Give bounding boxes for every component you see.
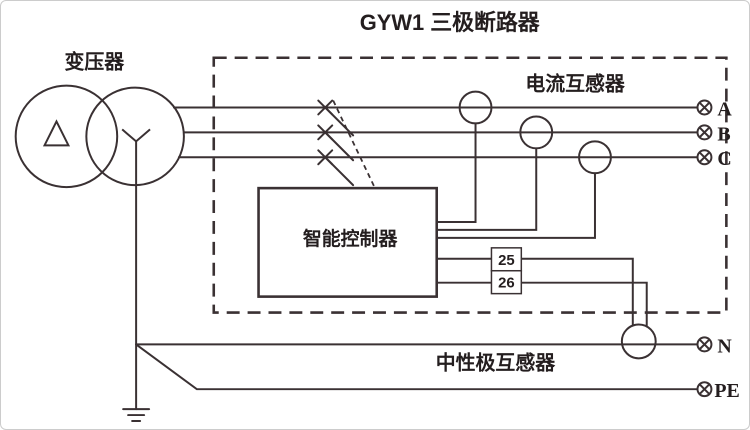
ct-b-tap-wire — [437, 148, 537, 230]
neutral-ct-icon — [622, 324, 656, 358]
terminal-26-number: 26 — [498, 275, 515, 292]
delta-icon — [45, 121, 69, 145]
ct-a-tap-wire — [437, 123, 476, 222]
trip-linkage-line — [333, 101, 374, 187]
terminal-a-label: A — [717, 98, 732, 120]
terminal-25-tag: 25 — [491, 248, 521, 271]
breaker-pole-contacts — [318, 101, 374, 187]
terminal-b-icon — [697, 125, 711, 139]
current-transformer-label: 电流互感器 — [525, 72, 626, 96]
ct-c-tap-wire — [437, 173, 595, 238]
schematic-page: 25 26 GYW1 三极断路器 变压器 电流互感器 智能控制器 中性极互感器 … — [0, 0, 750, 430]
terminal-n-label: N — [717, 335, 732, 357]
terminal-25-wire — [437, 259, 633, 326]
controller-label: 智能控制器 — [303, 227, 399, 250]
terminal-25-number: 25 — [498, 252, 515, 269]
terminal-n-icon — [697, 337, 711, 351]
pe-line — [136, 344, 697, 389]
neutral-transformer-label: 中性极互感器 — [436, 350, 556, 374]
contact-blade — [325, 132, 353, 160]
terminal-pe-icon — [697, 382, 711, 396]
contact-blade — [325, 157, 353, 185]
terminal-a-icon — [697, 101, 711, 115]
ground-icon — [123, 409, 149, 421]
wye-icon — [122, 129, 150, 141]
terminal-pe-label: PE — [714, 380, 739, 402]
terminal-26-wire — [437, 283, 647, 327]
current-transformers — [437, 92, 611, 238]
terminal-26-tag: 26 — [491, 271, 521, 294]
wiring-diagram: 25 26 GYW1 三极断路器 变压器 电流互感器 智能控制器 中性极互感器 … — [1, 1, 749, 429]
transformer-label: 变压器 — [64, 50, 125, 74]
terminal-c-icon — [697, 150, 711, 164]
transformer-symbol — [16, 86, 184, 188]
terminal-c-label: C — [717, 148, 731, 170]
terminal-b-label: B — [717, 123, 730, 145]
diagram-title: GYW1 三极断路器 — [360, 10, 541, 35]
